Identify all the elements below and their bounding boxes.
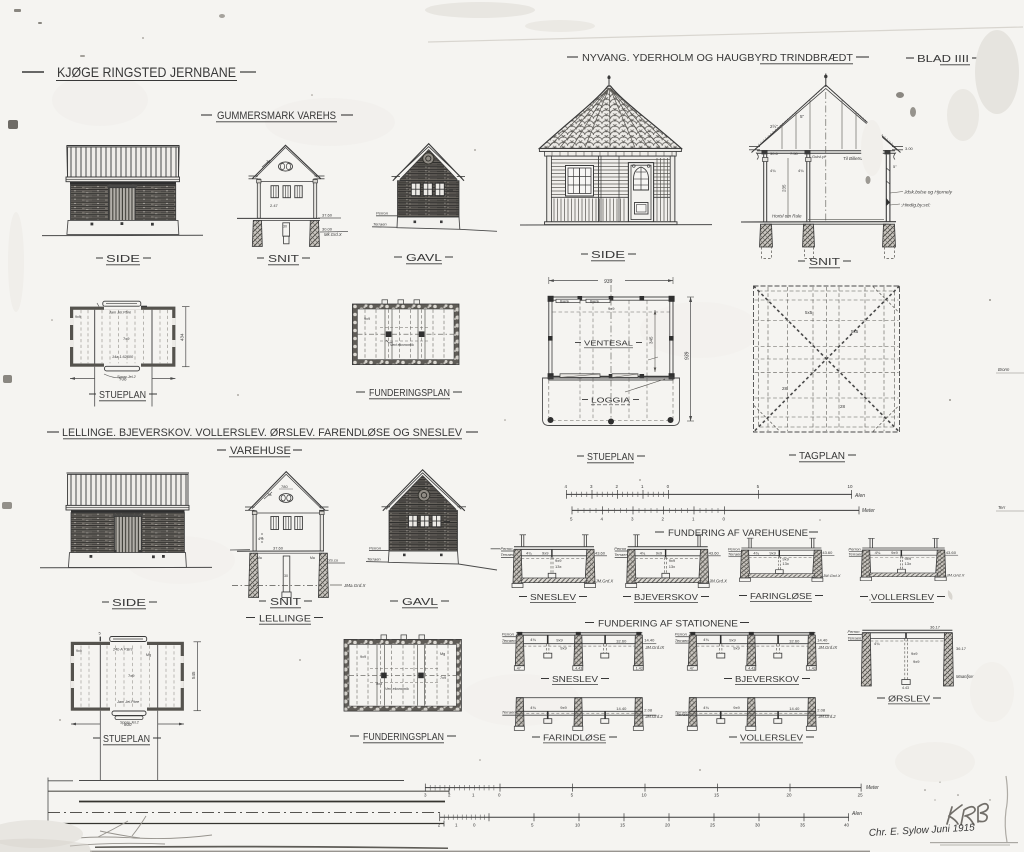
- svg-text:25: 25: [710, 822, 716, 827]
- svg-text:STUEPLAN: STUEPLAN: [103, 734, 150, 745]
- svg-text:9x9: 9x9: [913, 659, 920, 664]
- svg-text:7a: 7a: [266, 159, 271, 164]
- svg-text:GUMMERSMARK VAREHS: GUMMERSMARK VAREHS: [217, 110, 336, 122]
- svg-text:235: 235: [782, 184, 787, 192]
- svg-text:LOGGIA: LOGGIA: [591, 396, 630, 405]
- svg-text:VAREHUSE: VAREHUSE: [230, 445, 291, 457]
- svg-text:20: 20: [665, 822, 671, 827]
- svg-text:24b A.P.Brs: 24b A.P.Brs: [112, 648, 133, 652]
- svg-text:4.43: 4.43: [902, 686, 909, 690]
- svg-text:9x9: 9x9: [608, 306, 615, 311]
- svg-text:Ved ekonomik: Ved ekonomik: [390, 343, 415, 347]
- svg-text:Jdsk.bslse og Hjornely: Jdsk.bslse og Hjornely: [903, 190, 953, 196]
- svg-text:939: 939: [604, 279, 613, 285]
- svg-text:STUEPLAN: STUEPLAN: [99, 390, 146, 401]
- svg-text:BJEVERSKOV: BJEVERSKOV: [735, 674, 799, 684]
- svg-text:4¾: 4¾: [770, 168, 776, 173]
- svg-text:SNIT: SNIT: [268, 254, 299, 265]
- svg-text:35: 35: [800, 822, 806, 827]
- svg-text:30.00: 30.00: [322, 227, 333, 232]
- svg-text:36.17: 36.17: [956, 646, 967, 651]
- svg-text:7a: 7a: [267, 492, 272, 497]
- svg-text:780: 780: [281, 484, 288, 489]
- svg-text:FARINGLØSE: FARINGLØSE: [750, 591, 812, 601]
- svg-text:FUNDERINGSPLAN: FUNDERINGSPLAN: [369, 388, 450, 399]
- svg-text:5": 5": [800, 114, 805, 119]
- svg-text:Terr: Terr: [998, 505, 1006, 510]
- svg-text:Jam Jel.Pbre: Jam Jel.Pbre: [116, 700, 139, 704]
- svg-text:KJØGE RINGSTED JERNBANE: KJØGE RINGSTED JERNBANE: [57, 64, 236, 80]
- svg-text:Mk.Grd.X: Mk.Grd.X: [324, 232, 342, 237]
- svg-text:BLAD IIII: BLAD IIII: [917, 53, 969, 65]
- svg-text:5x5: 5x5: [805, 310, 813, 315]
- svg-text:14a 1.62500: 14a 1.62500: [112, 355, 134, 359]
- svg-text:Horisl om Rale: Horisl om Rale: [772, 214, 802, 219]
- svg-text:Mg: Mg: [146, 653, 151, 657]
- svg-text:Meter: Meter: [866, 785, 879, 791]
- svg-text:GAVL: GAVL: [402, 597, 439, 608]
- svg-text:9x9: 9x9: [360, 655, 366, 659]
- svg-text:Terraen: Terraen: [373, 222, 387, 227]
- svg-text:434: 434: [180, 333, 185, 341]
- svg-text:7x9: 7x9: [440, 676, 446, 680]
- svg-text:7x9: 7x9: [123, 336, 130, 341]
- svg-text:2½": 2½": [770, 123, 778, 129]
- svg-text:Brorm: Brorm: [998, 367, 1010, 372]
- svg-text:Ma: Ma: [310, 556, 315, 560]
- svg-text:30: 30: [284, 574, 288, 578]
- svg-text:SNIT: SNIT: [270, 597, 301, 608]
- svg-text:Baenk: Baenk: [590, 299, 599, 303]
- svg-text:Mg: Mg: [440, 652, 445, 656]
- svg-text:Ved ekonomik: Ved ekonomik: [385, 687, 410, 691]
- svg-text:GAVL: GAVL: [406, 253, 443, 264]
- svg-text:25: 25: [858, 793, 864, 798]
- svg-text:VENTESAL: VENTESAL: [584, 339, 633, 348]
- svg-text:GS.co: GS.co: [327, 558, 339, 563]
- svg-text:Ma: Ma: [257, 556, 262, 560]
- svg-text:Perron: Perron: [848, 629, 861, 634]
- svg-text:7x9: 7x9: [128, 673, 135, 678]
- svg-text:SNESLEV: SNESLEV: [552, 674, 598, 684]
- svg-text:SNESLEV: SNESLEV: [530, 592, 576, 602]
- svg-text:Terraen: Terraen: [367, 556, 381, 561]
- svg-text:4¾: 4¾: [798, 168, 804, 173]
- svg-text:9x9: 9x9: [75, 315, 81, 319]
- svg-text:345: 345: [649, 336, 654, 344]
- svg-text:28: 28: [840, 404, 846, 409]
- svg-text:30: 30: [755, 822, 761, 827]
- svg-text:10: 10: [575, 822, 581, 827]
- svg-text:939: 939: [685, 351, 691, 360]
- svg-text:Gulvl.pl: Gulvl.pl: [812, 154, 825, 159]
- svg-text:Baenk: Baenk: [560, 299, 569, 303]
- svg-text:Perron: Perron: [369, 545, 382, 550]
- svg-text:800: 800: [124, 722, 132, 727]
- svg-text:FARINDLØSE: FARINDLØSE: [543, 733, 606, 743]
- svg-text:SIDE: SIDE: [106, 254, 140, 265]
- svg-text:FUNDERING AF STATIONENE: FUNDERING AF STATIONENE: [598, 619, 738, 630]
- svg-text::Hindig.by.scl:: :Hindig.by.scl:: [901, 203, 931, 209]
- svg-text:3.00: 3.00: [905, 146, 914, 151]
- svg-text:SNIT: SNIT: [809, 257, 840, 268]
- svg-text:FUNDERING AF VAREHUSENE: FUNDERING AF VAREHUSENE: [668, 528, 808, 539]
- svg-text:4½: 4½: [258, 536, 264, 541]
- svg-text:9x9: 9x9: [911, 651, 918, 656]
- svg-text:4¾: 4¾: [874, 641, 880, 646]
- svg-text:Meter: Meter: [862, 508, 875, 514]
- svg-text:9x9: 9x9: [376, 682, 383, 686]
- svg-text:Alen: Alen: [854, 493, 865, 499]
- svg-text:10: 10: [848, 484, 854, 489]
- svg-text:37.60: 37.60: [322, 213, 333, 218]
- svg-text:STUEPLAN: STUEPLAN: [587, 452, 634, 463]
- svg-text:BJEVERSKOV: BJEVERSKOV: [634, 592, 698, 602]
- svg-text:28: 28: [782, 386, 788, 391]
- svg-text:Terraen: Terraen: [676, 712, 690, 717]
- svg-text:10: 10: [642, 793, 648, 798]
- svg-text:9x9: 9x9: [364, 317, 370, 321]
- svg-text:Perron: Perron: [376, 211, 389, 216]
- svg-text:545: 545: [191, 671, 196, 679]
- svg-text:JMa.Grd.X: JMa.Grd.X: [343, 583, 367, 588]
- svg-text:708: 708: [119, 377, 127, 382]
- svg-text:37.60: 37.60: [273, 546, 284, 551]
- svg-text:15: 15: [620, 822, 626, 827]
- svg-text:20: 20: [787, 793, 793, 798]
- svg-text:SIDE: SIDE: [112, 598, 146, 609]
- svg-text:LELLINGE: LELLINGE: [259, 614, 311, 625]
- svg-text:LELLINGE. BJEVERSKOV. VOLLERSL: LELLINGE. BJEVERSKOV. VOLLERSLEV. ØRSLEV…: [62, 427, 463, 439]
- svg-text:5x5: 5x5: [851, 329, 859, 334]
- svg-text:VOLLERSLEV: VOLLERSLEV: [740, 733, 803, 743]
- svg-text:VOLLERSLEV: VOLLERSLEV: [871, 592, 934, 602]
- svg-text:40: 40: [844, 822, 850, 827]
- svg-text:Jam Jel.Pbre: Jam Jel.Pbre: [108, 311, 131, 315]
- svg-text:Alen: Alen: [851, 811, 862, 817]
- svg-text:FUNDERINGSPLAN: FUNDERINGSPLAN: [363, 732, 444, 743]
- svg-text:SIDE: SIDE: [591, 250, 625, 261]
- svg-text:Terraen: Terraen: [848, 635, 862, 640]
- svg-text:ØRSLEV: ØRSLEV: [888, 694, 930, 704]
- svg-text:5": 5": [893, 164, 897, 169]
- svg-text:2.47: 2.47: [270, 203, 279, 208]
- svg-text:TAGPLAN: TAGPLAN: [799, 451, 845, 462]
- svg-text:36.17: 36.17: [930, 625, 941, 630]
- svg-text:NYVANG. YDERHOLM OG HAUGBYRD T: NYVANG. YDERHOLM OG HAUGBYRD TRINDBRÆDT: [582, 52, 854, 64]
- svg-text:9x9: 9x9: [76, 649, 82, 653]
- svg-text:15: 15: [714, 793, 720, 798]
- svg-text:30: 30: [283, 225, 287, 229]
